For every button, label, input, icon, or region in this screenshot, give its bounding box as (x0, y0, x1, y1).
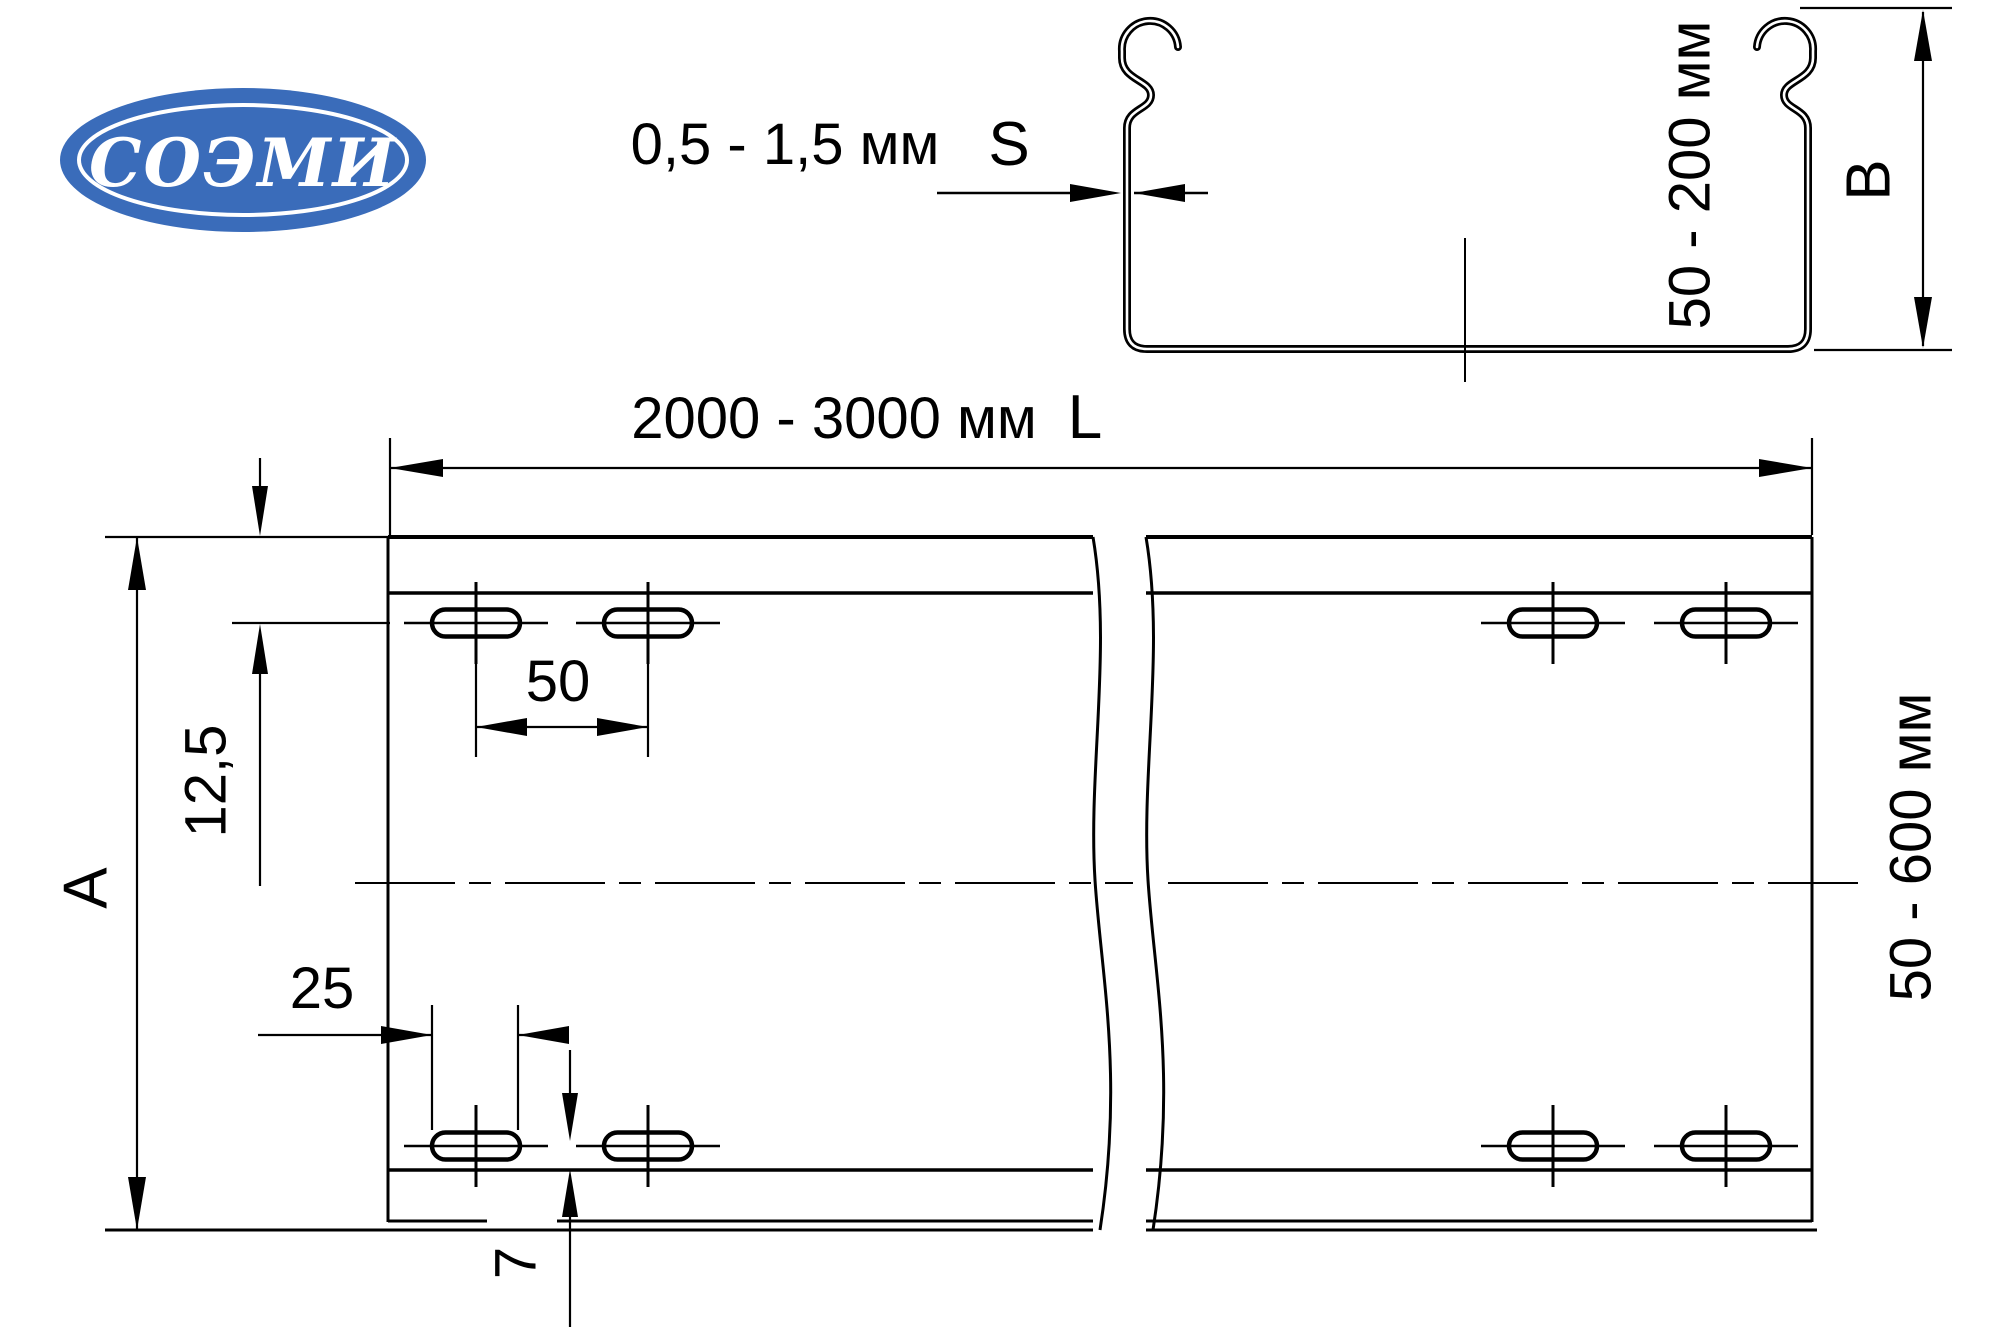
slot-hole (576, 1105, 720, 1187)
hole-pitch-label: 50 (526, 649, 591, 714)
arrowhead-right (597, 718, 648, 736)
width-range-label: 50 - 600 мм (1879, 693, 1944, 1002)
arrowhead-right (1759, 459, 1812, 477)
profile-height-range-label: 50 - 200 мм (1658, 21, 1723, 330)
cross-section-view: 0,5 - 1,5 мм S 50 - 200 мм B (631, 8, 1952, 382)
dimension-length: 2000 - 3000 мм L (390, 383, 1812, 535)
slot-length-label: 25 (290, 956, 355, 1021)
length-symbol-label: L (1068, 383, 1102, 452)
logo: СОЭМИ (60, 88, 426, 232)
width-symbol-label: A (52, 867, 121, 909)
arrowhead-up (128, 537, 146, 590)
slot-hole (1481, 1105, 1625, 1187)
arrowhead-down (128, 1177, 146, 1230)
arrowhead-left (390, 459, 443, 477)
arrowhead-down (1914, 297, 1932, 348)
technical-drawing: СОЭМИ 0,5 - 1,5 мм S 50 - 200 мм B (0, 0, 2000, 1333)
break-line-right (1146, 537, 1164, 1230)
drawing-canvas: СОЭМИ 0,5 - 1,5 мм S 50 - 200 мм B (0, 0, 2000, 1333)
slot-hole (404, 1105, 548, 1187)
arrowhead-down (562, 1093, 578, 1141)
arrowhead-up (562, 1169, 578, 1217)
arrowhead-up (1914, 10, 1932, 61)
dimension-edge-to-hole-row: 12,5 (174, 458, 391, 886)
dimension-thickness: 0,5 - 1,5 мм S (631, 110, 1208, 202)
thickness-range-label: 0,5 - 1,5 мм (631, 112, 940, 177)
edge-to-hole-row-label: 12,5 (174, 725, 239, 838)
arrowhead-right (1070, 184, 1121, 202)
arrowhead-up (252, 624, 268, 674)
plan-view: 2000 - 3000 мм L A 50 - 600 мм 12,5 (52, 383, 1944, 1327)
thickness-symbol-label: S (988, 110, 1029, 179)
hole-row-to-bend-label: 7 (484, 1247, 549, 1279)
length-range-label: 2000 - 3000 мм (631, 386, 1036, 451)
arrowhead-left (1134, 184, 1185, 202)
arrowhead-down (252, 486, 268, 536)
slot-hole (1654, 1105, 1798, 1187)
profile-height-symbol-label: B (1835, 159, 1904, 200)
arrowhead-right (381, 1026, 432, 1044)
arrowhead-left (476, 718, 527, 736)
dimension-slot-length: 25 (258, 956, 569, 1130)
dimension-hole-row-to-bend: 7 (484, 1050, 579, 1327)
logo-text: СОЭМИ (89, 124, 398, 202)
dimension-hole-pitch: 50 (476, 649, 648, 757)
arrowhead-left (518, 1026, 569, 1044)
